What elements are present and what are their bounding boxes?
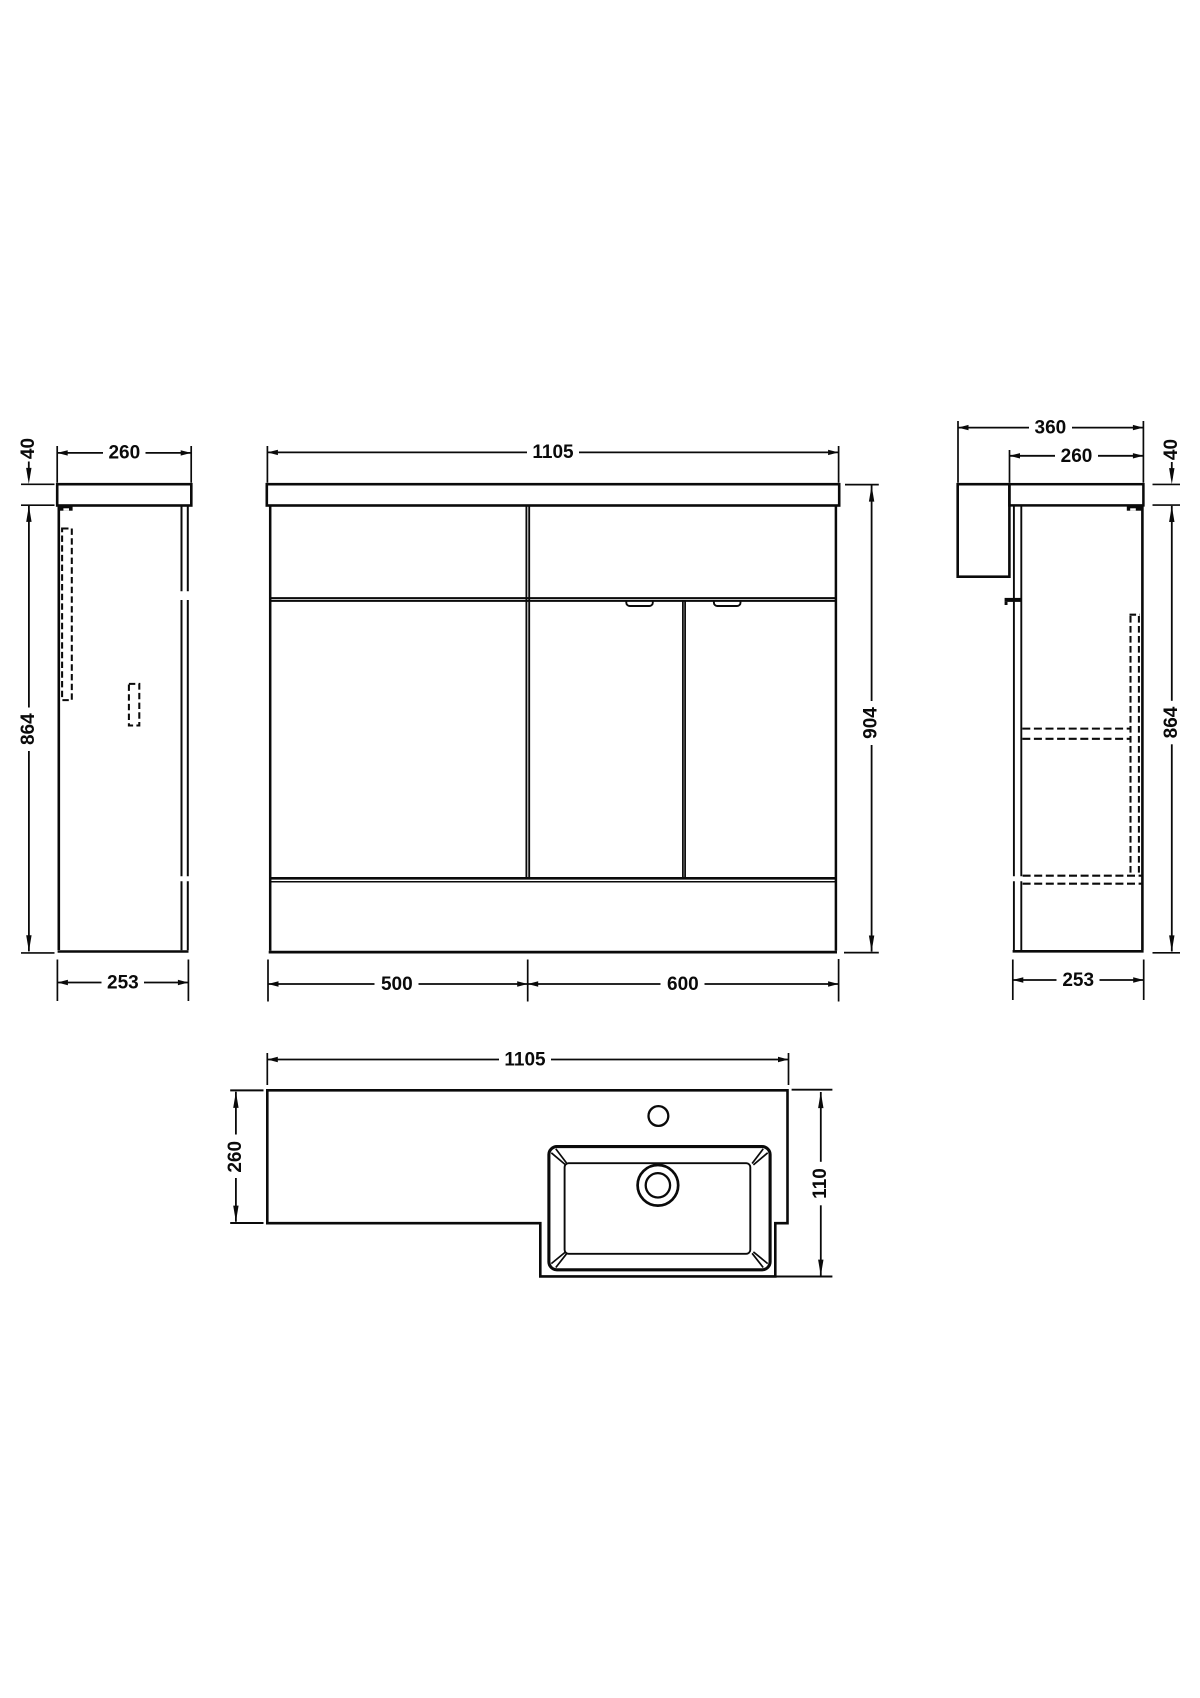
svg-text:40: 40: [1161, 439, 1182, 460]
svg-text:253: 253: [107, 973, 139, 994]
svg-text:260: 260: [108, 443, 140, 464]
svg-text:260: 260: [1061, 446, 1093, 467]
svg-text:500: 500: [381, 974, 413, 995]
svg-text:253: 253: [1062, 970, 1094, 991]
svg-text:600: 600: [667, 974, 699, 995]
svg-text:904: 904: [861, 707, 882, 739]
svg-text:260: 260: [225, 1141, 246, 1173]
svg-text:110: 110: [810, 1168, 831, 1199]
svg-text:1105: 1105: [504, 1050, 546, 1071]
svg-text:864: 864: [18, 713, 39, 745]
svg-text:40: 40: [18, 438, 39, 459]
svg-text:864: 864: [1161, 706, 1182, 738]
svg-text:1105: 1105: [532, 442, 574, 463]
svg-text:360: 360: [1035, 418, 1067, 439]
